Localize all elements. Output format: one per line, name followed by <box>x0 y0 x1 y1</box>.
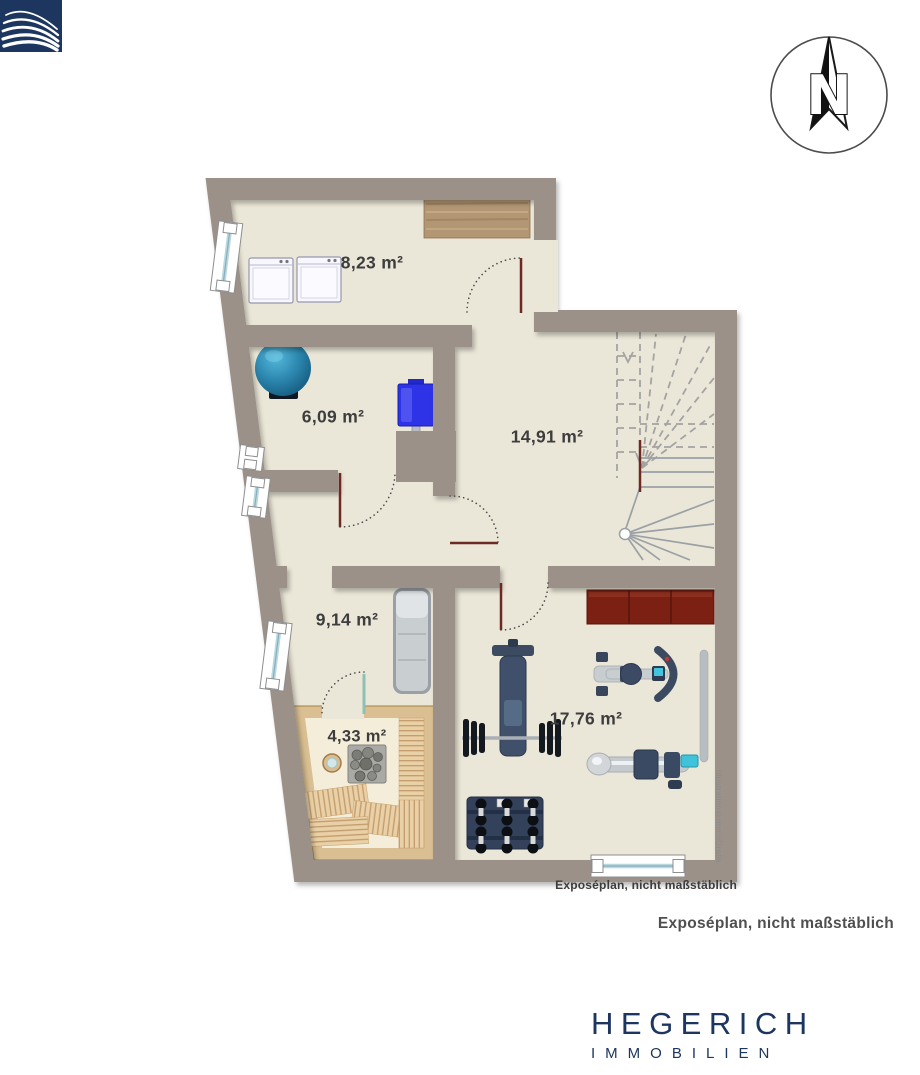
washing-machine <box>249 258 293 303</box>
wall-pier <box>396 431 456 482</box>
logo-brand-text: HEGERICH <box>591 1008 815 1039</box>
window-small <box>238 445 265 472</box>
room-label-boiler: 6,09 m² <box>302 407 364 428</box>
sauna-door-opening <box>322 701 364 719</box>
sauna-heater <box>348 745 386 783</box>
lounger <box>393 588 431 694</box>
room-label-fitness: 17,76 m² <box>550 709 622 730</box>
logo-subtitle-text: IMMOBILIEN <box>591 1046 815 1061</box>
compass-letter: N <box>806 64 851 127</box>
illustration-credit: Illustration©immoGrafik <box>714 770 723 858</box>
door-opening <box>532 240 558 312</box>
company-logo: HEGERICH IMMOBILIEN <box>591 1008 815 1061</box>
floor-plan-drawing: N <box>0 0 920 1075</box>
room-label-sauna: 4,33 m² <box>328 728 387 747</box>
dryer-machine <box>297 257 341 302</box>
sauna-cabin <box>293 701 436 860</box>
logo-mark-icon <box>0 0 62 52</box>
plan-caption: Exposéplan, nicht maßstäblich <box>658 915 894 933</box>
gym-mat <box>700 650 708 762</box>
compass-north-icon: N <box>771 37 887 153</box>
gym-dumbbell-rack <box>467 797 543 854</box>
window-small <box>242 476 271 519</box>
sideboard <box>587 590 714 624</box>
floor-plan-page: N 8,23 m² 6,09 m² 14,91 m² 9,14 m² 4,33 … <box>0 0 920 1075</box>
room-label-relax: 9,14 m² <box>316 610 378 631</box>
room-label-utility: 8,23 m² <box>341 253 403 274</box>
plan-caption-small: Exposéplan, nicht maßstäblich <box>555 878 737 892</box>
sauna-bucket <box>323 754 341 772</box>
wood-shelf <box>424 196 530 238</box>
window <box>591 855 685 877</box>
room-label-stair-hall: 14,91 m² <box>511 427 583 448</box>
